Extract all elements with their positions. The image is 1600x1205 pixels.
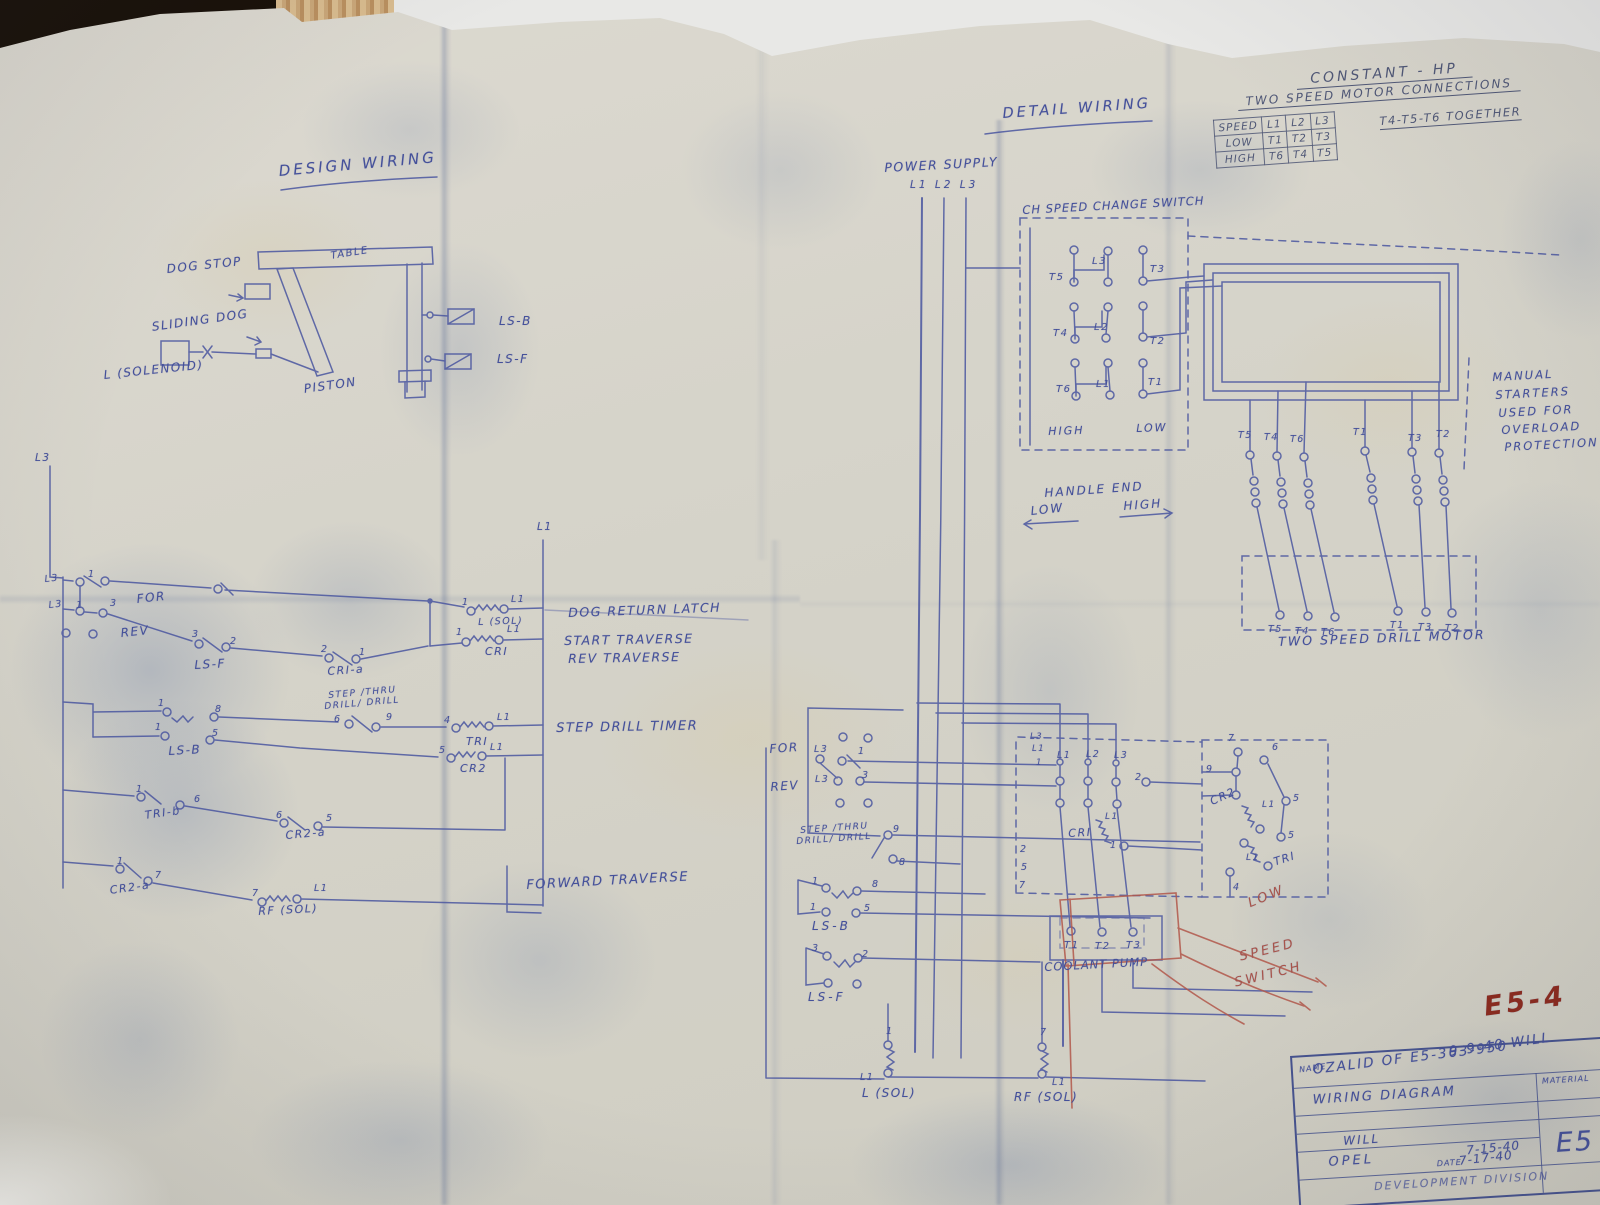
- num-det-ctr-2: 2: [1135, 772, 1143, 783]
- table-header-l2: L2: [1286, 113, 1311, 131]
- drawing-number: E5: [1555, 1126, 1595, 1159]
- label-st1-top-t5: T5: [1238, 430, 1253, 441]
- material-label: MATERIAL: [1542, 1074, 1590, 1086]
- num-wire-1: 1: [1036, 758, 1043, 768]
- label-wire-l3: L3: [1030, 732, 1043, 742]
- num-lsb-5: 5: [212, 728, 220, 739]
- num-dr-7a: 7: [1228, 733, 1236, 744]
- circuit-linework: [0, 0, 1600, 1205]
- label-det-tri-l1: L1: [1246, 853, 1260, 863]
- label-det-ls-f: LS-F: [808, 990, 846, 1004]
- table-row-high: HIGH: [1216, 149, 1265, 168]
- num-cr2a1-6: 6: [276, 810, 284, 821]
- label-cp-t1: T1: [1064, 940, 1079, 951]
- num-det-for-1: 1: [858, 746, 866, 757]
- table-cell: T1: [1263, 131, 1288, 149]
- label-det-for: FOR: [769, 740, 799, 756]
- num-sel-6: 6: [334, 714, 342, 725]
- drawn-by: WILL: [1343, 1132, 1381, 1148]
- num-wire-2: 2: [1020, 844, 1028, 855]
- blueprint-paper: DESIGN WIRING DETAIL WIRING CONSTANT - H…: [0, 0, 1600, 1205]
- num-det-lsf-3: 3: [812, 943, 820, 954]
- num-trib-6: 6: [194, 794, 202, 805]
- num-det-lsb-5: 5: [864, 903, 872, 914]
- label-det-l3-for: L3: [814, 744, 828, 755]
- label-rowd-l1: L1: [490, 742, 504, 753]
- label-det-lsol-l1: L1: [860, 1072, 874, 1083]
- label-sw-t1: T1: [1148, 377, 1163, 388]
- num-row2-1: 1: [76, 600, 84, 611]
- label-det-ctr-l1: L1: [1057, 750, 1071, 761]
- table-cell: T3: [1311, 128, 1336, 146]
- label-st1-top-t4: T4: [1264, 432, 1279, 443]
- label-rowa-l1: L1: [511, 594, 525, 605]
- label-sw-t3: T3: [1150, 264, 1165, 275]
- label-l1-bus: L1: [537, 521, 553, 533]
- num-det-lsf-2: 2: [862, 949, 870, 960]
- num-lsb-8: 8: [215, 704, 223, 715]
- label-det-rfsol-l1: L1: [1052, 1077, 1066, 1088]
- label-det-ls-b: LS-B: [812, 919, 851, 933]
- num-row2-3: 3: [110, 598, 118, 609]
- num-dr-4: 4: [1233, 882, 1241, 893]
- label-sw-t2: T2: [1150, 336, 1165, 347]
- num-sel-9: 9: [386, 712, 394, 723]
- num-row1-1: 1: [88, 569, 96, 580]
- label-ladder-ls-b: LS-B: [168, 742, 202, 758]
- label-cp-t3: T3: [1126, 940, 1141, 951]
- num-rowe-7: 7: [252, 888, 260, 899]
- label-rowe-l1: L1: [314, 883, 328, 894]
- table-cell: T5: [1312, 144, 1337, 162]
- num-lsb-1b: 1: [155, 722, 163, 733]
- num-lsf-3: 3: [192, 629, 200, 640]
- drawing-name: WIRING DIAGRAM: [1312, 1084, 1456, 1108]
- label-cp-t2: T2: [1095, 941, 1110, 952]
- num-lsf-2: 2: [230, 636, 238, 647]
- label-det-ctr-l2: L2: [1086, 749, 1100, 760]
- label-rowb-l1: L1: [507, 624, 521, 635]
- label-sw-l1: L1: [1096, 379, 1111, 390]
- caption-start-traverse: START TRAVERSE: [564, 631, 694, 648]
- label-det-cr2-l1: L1: [1262, 800, 1276, 810]
- label-sw-l2: L2: [1094, 322, 1109, 333]
- label-wire-l1: L1: [1032, 744, 1045, 754]
- label-power-lines: L1 L2 L3: [910, 179, 978, 191]
- table-header-l1: L1: [1262, 115, 1287, 133]
- blueprint-photo: DESIGN WIRING DETAIL WIRING CONSTANT - H…: [0, 0, 1600, 1205]
- num-dr-6: 6: [1272, 742, 1280, 753]
- caption-step-drill-timer: STEP DRILL TIMER: [556, 719, 698, 736]
- label-ladder-ls-f: LS-F: [194, 656, 226, 672]
- label-cri-coil: CRI: [485, 645, 508, 658]
- num-dr-5b: 5: [1288, 830, 1296, 841]
- table-header-l3: L3: [1310, 112, 1335, 130]
- num-rowa-1: 1: [462, 597, 470, 608]
- label-st1-top-t6: T6: [1290, 434, 1305, 445]
- num-wire-7: 7: [1019, 880, 1027, 891]
- num-wire-5: 5: [1021, 862, 1029, 873]
- num-det-lsb-1b: 1: [810, 902, 818, 913]
- label-st2-top-t3: T3: [1408, 433, 1423, 444]
- num-cr2a1-5: 5: [326, 813, 334, 824]
- label-det-cri: CRI: [1068, 826, 1092, 840]
- table-cell: T4: [1288, 145, 1313, 163]
- num-rowd-5: 5: [439, 745, 447, 756]
- label-det-cri-l1: L1: [1105, 812, 1119, 822]
- label-sw-low: LOW: [1136, 421, 1168, 435]
- num-det-cri-1: 1: [1110, 840, 1118, 851]
- label-ls-f-mech: LS-F: [497, 352, 529, 366]
- label-det-rev: REV: [770, 778, 800, 794]
- num-dr-9: 9: [1206, 764, 1214, 775]
- label-st2-top-t2: T2: [1436, 429, 1451, 440]
- label-cr2-coil: CR2: [460, 762, 487, 775]
- num-cria-1: 1: [359, 647, 367, 658]
- label-det-l3-rev: L3: [815, 774, 829, 785]
- checked-by: OPEL: [1328, 1152, 1374, 1170]
- num-det-sel-8: 8: [899, 857, 907, 868]
- label-l3-feeder: L3: [35, 452, 51, 464]
- num-rowc-4: 4: [444, 715, 452, 726]
- num-det-lsb-1a: 1: [812, 876, 820, 887]
- label-det-rf-sol: RF (SOL): [1014, 1090, 1078, 1104]
- label-handle-high: HIGH: [1123, 496, 1163, 513]
- label-det-ctr-l3: L3: [1114, 750, 1128, 761]
- label-rev: REV: [120, 623, 150, 640]
- num-det-sel-9: 9: [893, 824, 901, 835]
- label-l3-row1: L3: [44, 573, 59, 585]
- num-det-lsol-1: 1: [886, 1026, 894, 1037]
- label-l3-row2: L3: [48, 599, 63, 611]
- label-tri-coil: TRI: [466, 735, 488, 748]
- num-det-lsb-8: 8: [872, 879, 880, 890]
- num-dr-5a: 5: [1293, 793, 1301, 804]
- label-sw-t5: T5: [1049, 272, 1064, 283]
- num-cr2a2-7: 7: [155, 870, 163, 881]
- table-cell: T6: [1264, 147, 1289, 165]
- num-det-rev-3: 3: [862, 770, 870, 781]
- label-cri-a: CRI-a: [327, 662, 365, 678]
- num-lsb-1a: 1: [158, 698, 166, 709]
- label-rowc-l1: L1: [497, 712, 511, 723]
- label-sw-t4: T4: [1053, 328, 1068, 339]
- table-cell: T2: [1287, 129, 1312, 147]
- motor-connection-table: SPEED L1 L2 L3 LOW T1 T2 T3 HIGH T6 T4 T…: [1213, 111, 1338, 168]
- label-ls-b-mech: LS-B: [499, 314, 532, 328]
- caption-rev-traverse: REV TRAVERSE: [568, 649, 681, 666]
- num-cria-2: 2: [321, 644, 329, 655]
- label-st2-top-t1: T1: [1353, 427, 1368, 438]
- num-det-rfsol-7: 7: [1040, 1027, 1048, 1038]
- num-trib-1: 1: [136, 784, 144, 795]
- label-sw-high: HIGH: [1048, 424, 1085, 438]
- num-cr2a2-1: 1: [117, 856, 125, 867]
- num-rowb-1: 1: [456, 627, 464, 638]
- label-sw-t6: T6: [1056, 384, 1071, 395]
- label-sw-l3: L3: [1092, 256, 1107, 267]
- label-det-l-sol: L (SOL): [862, 1086, 916, 1100]
